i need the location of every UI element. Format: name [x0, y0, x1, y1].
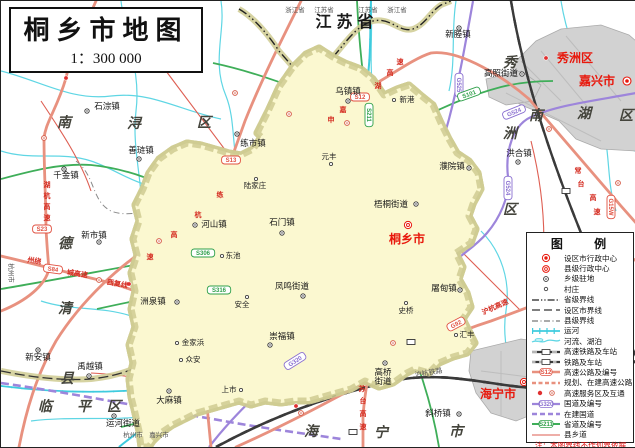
svg-text:S306: S306: [196, 251, 211, 257]
ic-marker: [97, 278, 102, 283]
town-marker: [193, 223, 197, 227]
svg-text:G525: G525: [455, 78, 461, 93]
map-label: 高照街道: [484, 68, 519, 78]
town-marker: [167, 389, 171, 393]
map-label: 申: [328, 115, 335, 124]
road-badge: S211: [365, 103, 373, 126]
map-label: 石门镇: [269, 217, 295, 227]
map-label: 新市镇: [81, 230, 107, 240]
map-label: 江苏省: [314, 5, 334, 14]
ic-marker: [616, 181, 621, 186]
legend-item: 省级界线: [531, 295, 630, 305]
map-label: 善琏镇: [128, 145, 154, 155]
expressway-icon: S12: [531, 367, 561, 377]
city-marker: [623, 77, 631, 85]
map-label: 斜桥镇: [425, 408, 451, 418]
map-label: 众安: [186, 354, 201, 364]
map-label: 速: [360, 422, 367, 431]
legend-item: S12高速公路及编号: [531, 367, 630, 377]
town-marker: [458, 288, 462, 292]
vill-marker: [454, 333, 457, 336]
ic-marker: [345, 121, 350, 126]
map-label: 江苏省: [315, 12, 378, 31]
town-marker: [268, 343, 272, 347]
map-label: 高: [44, 202, 51, 211]
map-label: 浙江省: [387, 5, 407, 14]
map-label: 高: [171, 230, 178, 239]
map-label: 新港: [400, 94, 415, 104]
legend-item: 县乡道: [531, 430, 630, 440]
road-badge: S23: [33, 225, 52, 233]
map-label: 汇丰: [460, 329, 475, 339]
map-label: 练市镇: [240, 138, 266, 148]
map-label: 秀洲区: [556, 50, 593, 65]
vill-marker: [329, 162, 332, 165]
planned-expressway-icon: [531, 378, 561, 388]
map-scale: 1：300 000: [11, 47, 201, 68]
map-label: 史桥: [399, 305, 414, 315]
town-marker: [175, 300, 179, 304]
map-label: 洪合镇: [506, 148, 532, 158]
map-label: 金家浜: [182, 337, 205, 347]
hsr-icon: [531, 347, 561, 357]
town-marker: [457, 412, 461, 416]
road-badge: G524: [504, 176, 512, 199]
town-marker: [87, 374, 91, 378]
legend: 图 例 设区市行政中心 县级行政中心 乡级驻地 村庄 省级界线 设区市界线 县级…: [526, 232, 634, 443]
map-label: 速: [147, 252, 154, 261]
map-label: 江苏省: [358, 5, 378, 14]
vill-marker: [404, 301, 407, 304]
map-label: 梧桐街道: [374, 199, 409, 209]
map-label: 杭: [195, 210, 202, 219]
legend-title: 图 例: [541, 235, 630, 252]
svg-text:S211: S211: [365, 108, 371, 122]
map-label: 运河街道: [106, 418, 141, 428]
legend-item: 高速服务区及互通: [531, 388, 630, 398]
map-label: 高: [387, 68, 394, 77]
legend-item: G320国道及编号: [531, 398, 630, 408]
vill-marker: [392, 98, 395, 101]
map-label: 嘉兴市: [578, 73, 615, 88]
vill-marker: [245, 295, 248, 298]
river-icon: [531, 336, 561, 346]
map-label: 区: [619, 107, 635, 123]
map-label: 元丰: [322, 151, 337, 161]
legend-item: 河流、湖泊: [531, 336, 630, 346]
ic-marker: [391, 341, 396, 346]
map-label: 石淙镇: [94, 101, 120, 111]
city-line-icon: [531, 305, 561, 315]
town-marker: [235, 132, 239, 136]
map-label: 练: [217, 190, 224, 199]
svg-text:S12: S12: [355, 95, 366, 101]
provincial-road-icon: S211: [531, 419, 561, 429]
map-label: 清: [58, 300, 74, 316]
legend-item: 县级行政中心: [531, 263, 630, 273]
legend-item: 设区市界线: [531, 305, 630, 315]
map-label: 崇福镇: [269, 331, 295, 341]
sta-marker: [349, 430, 357, 435]
map-label: 台: [578, 179, 585, 188]
ic-marker: [233, 91, 238, 96]
road-badge: S316: [207, 286, 230, 294]
legend-item: 运河: [531, 326, 630, 336]
map-label: 东池: [226, 250, 241, 260]
ic-marker: [299, 411, 304, 416]
town-marker: [280, 231, 284, 235]
map-label: 安全: [235, 299, 250, 309]
county-marker: [404, 221, 411, 228]
svg-text:S23: S23: [37, 227, 48, 233]
map-label: 速: [594, 207, 601, 216]
svg-text:S12: S12: [541, 370, 552, 376]
town-marker: [97, 240, 101, 244]
province-line-icon: [531, 295, 561, 305]
svc-marker: [294, 404, 298, 408]
legend-item: 乡级驻地: [531, 274, 630, 284]
service-area-icon: [531, 388, 561, 398]
city-center-icon: [531, 253, 561, 263]
map-label: 洲泉镇: [140, 296, 166, 306]
legend-note: 注：本图界线不作划界依据: [531, 441, 630, 448]
ic-marker: [287, 112, 292, 117]
legend-item: 村庄: [531, 284, 630, 294]
legend-item: 设区市行政中心: [531, 253, 630, 263]
map-label: 杭: [44, 191, 51, 200]
svc-marker: [544, 56, 548, 60]
town-marker: [137, 157, 141, 161]
map-label: 高: [360, 409, 367, 418]
map-label: 濮院镇: [439, 161, 465, 171]
map-label: 乌镇镇: [335, 86, 361, 96]
map-label: 杭州市: [7, 263, 16, 283]
map-label: 浙江省: [285, 5, 305, 14]
ic-marker: [42, 136, 47, 141]
svg-text:S13: S13: [226, 158, 237, 164]
map-label: 速: [397, 57, 404, 66]
town-marker: [467, 166, 471, 170]
ic-marker: [157, 239, 162, 244]
map-title: 桐乡市地图: [11, 10, 201, 47]
ic-marker: [547, 127, 552, 132]
sta-marker: [562, 189, 570, 194]
map-label: 杭州市: [123, 430, 143, 439]
county-road-icon: [531, 430, 561, 440]
map-label: 新安镇: [25, 352, 51, 362]
svc-marker: [64, 76, 68, 80]
village-icon: [531, 284, 561, 294]
town-marker: [383, 361, 387, 365]
map-label: 桐乡市: [389, 231, 425, 246]
town-marker: [520, 72, 524, 76]
legend-item: 高速铁路及车站: [531, 347, 630, 357]
map-page: S12S13S23S84G92G15WG525G524G524G320S211S…: [0, 0, 635, 448]
road-badge: G15W: [607, 195, 615, 218]
map-label: 禹越镇: [77, 361, 103, 371]
legend-item: S211省道及编号: [531, 419, 630, 429]
map-label: 河山镇: [201, 219, 227, 229]
county-center-icon: [531, 264, 561, 274]
town-marker: [414, 202, 418, 206]
vill-marker: [179, 358, 182, 361]
canal-icon: [531, 326, 561, 336]
map-label: 千金镇: [53, 170, 79, 180]
vill-marker: [220, 254, 223, 257]
town-marker: [516, 160, 520, 164]
legend-item: 铁路及车站: [531, 357, 630, 367]
map-label: 高: [590, 193, 597, 202]
svg-text:S316: S316: [212, 288, 227, 294]
township-icon: [531, 274, 561, 284]
map-label: 海宁市: [480, 386, 516, 401]
map-label: 常: [575, 166, 582, 175]
map-label: 湖: [375, 81, 382, 90]
svg-text:G524: G524: [504, 181, 510, 196]
vill-marker: [239, 388, 242, 391]
map-label: 屠甸镇: [431, 283, 457, 293]
national-road-planned-icon: [531, 409, 561, 419]
map-label: 新塍镇: [445, 29, 471, 39]
svg-text:G15W: G15W: [607, 198, 613, 215]
svg-text:G320: G320: [539, 402, 554, 408]
vill-marker: [175, 341, 178, 344]
map-label: 速: [44, 213, 51, 222]
map-label: 大麻镇: [156, 395, 182, 405]
map-label: 上市: [222, 384, 237, 394]
map-label: 宁: [374, 424, 390, 440]
map-title-box: 桐乡市地图 1：300 000: [9, 7, 203, 73]
town-marker: [85, 109, 89, 113]
county-line-icon: [531, 316, 561, 326]
map-label: 凤鸣街道: [275, 281, 310, 291]
svg-text:S211: S211: [539, 422, 553, 428]
map-label: 陆家庄: [244, 180, 267, 190]
map-label: 湖: [44, 180, 51, 189]
map-label: 嘉兴市: [149, 430, 169, 439]
national-road-icon: G320: [531, 399, 561, 409]
map-label: 台: [360, 396, 367, 405]
legend-item: 在建国道: [531, 409, 630, 419]
map-label: 嘉: [339, 105, 347, 114]
town-marker: [301, 294, 305, 298]
sta-marker: [407, 340, 415, 345]
legend-item: 规划、在建高速公路: [531, 378, 630, 388]
map-label: 苏: [359, 384, 366, 393]
map-label: 县: [60, 370, 75, 386]
map-label: 街道: [374, 376, 392, 386]
road-badge: S13: [222, 156, 241, 164]
road-badge: S306: [191, 249, 214, 257]
map-label: 浔: [127, 115, 143, 131]
town-marker: [346, 99, 350, 103]
legend-item: 县级界线: [531, 315, 630, 325]
railway-icon: [531, 357, 561, 367]
map-label: 平: [77, 398, 93, 414]
